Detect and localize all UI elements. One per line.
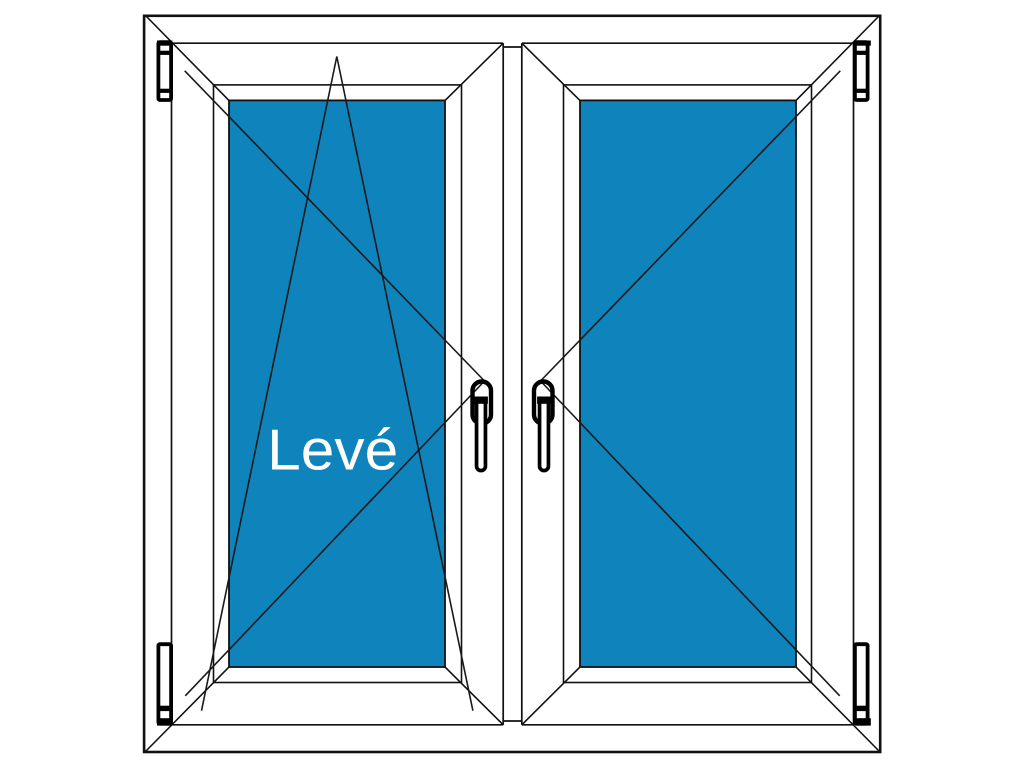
svg-text:Levé: Levé <box>267 419 398 483</box>
